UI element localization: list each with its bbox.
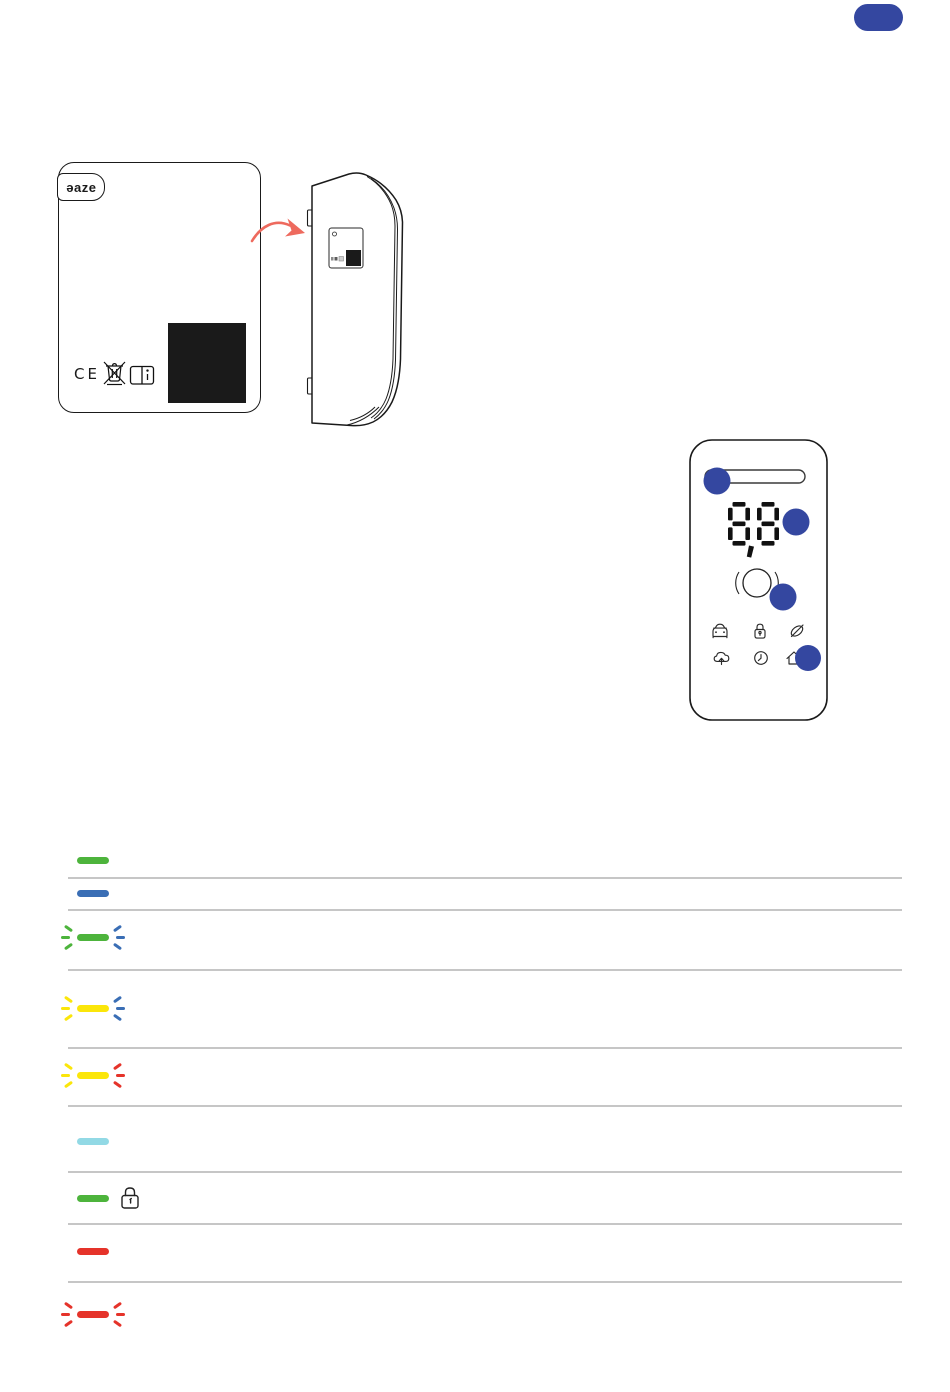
label-qr-area (346, 250, 361, 266)
callout-marker (783, 509, 810, 536)
brand-logo-text: ǝaze (66, 180, 96, 195)
table-divider (68, 1105, 902, 1107)
callout-marker (770, 584, 797, 611)
table-divider (68, 1171, 902, 1173)
arrow-head (285, 219, 305, 237)
table-divider (68, 877, 902, 879)
device-side-view (303, 164, 413, 432)
manual-book-icon (129, 365, 155, 386)
led-indicator-solid-cyan (63, 1128, 123, 1155)
ce-mark: CE (74, 365, 100, 383)
led-indicator-blink-red (63, 1301, 123, 1328)
table-divider (68, 969, 902, 971)
callout-marker (704, 468, 731, 495)
side-outline (312, 173, 403, 426)
table-divider (68, 909, 902, 911)
led-indicator-solid-green (63, 847, 123, 874)
lock-icon (119, 1186, 141, 1210)
product-label-area (168, 323, 246, 403)
led-indicator-solid-blue (63, 880, 123, 907)
table-divider (68, 1281, 902, 1283)
brand-logo: ǝaze (57, 173, 105, 201)
led-indicator-solid-green-locked (63, 1185, 123, 1212)
arrow-icon (246, 206, 310, 250)
corner-badge (854, 4, 903, 31)
led-indicator-blink-yellow-blue (63, 995, 123, 1022)
weee-crossed-bin-icon (101, 359, 128, 387)
led-indicator-blink-green-blue (63, 924, 123, 951)
led-indicator-solid-red (63, 1238, 123, 1265)
side-product-label (329, 228, 363, 268)
device-front-view: ǝaze CE (58, 162, 261, 413)
control-panel (688, 438, 829, 722)
table-divider (68, 1047, 902, 1049)
callout-marker (795, 645, 821, 671)
led-indicator-blink-yellow-red (63, 1062, 123, 1089)
table-divider (68, 1223, 902, 1225)
arrow-path (252, 223, 290, 241)
manual-page: ǝaze CE (0, 0, 950, 1392)
